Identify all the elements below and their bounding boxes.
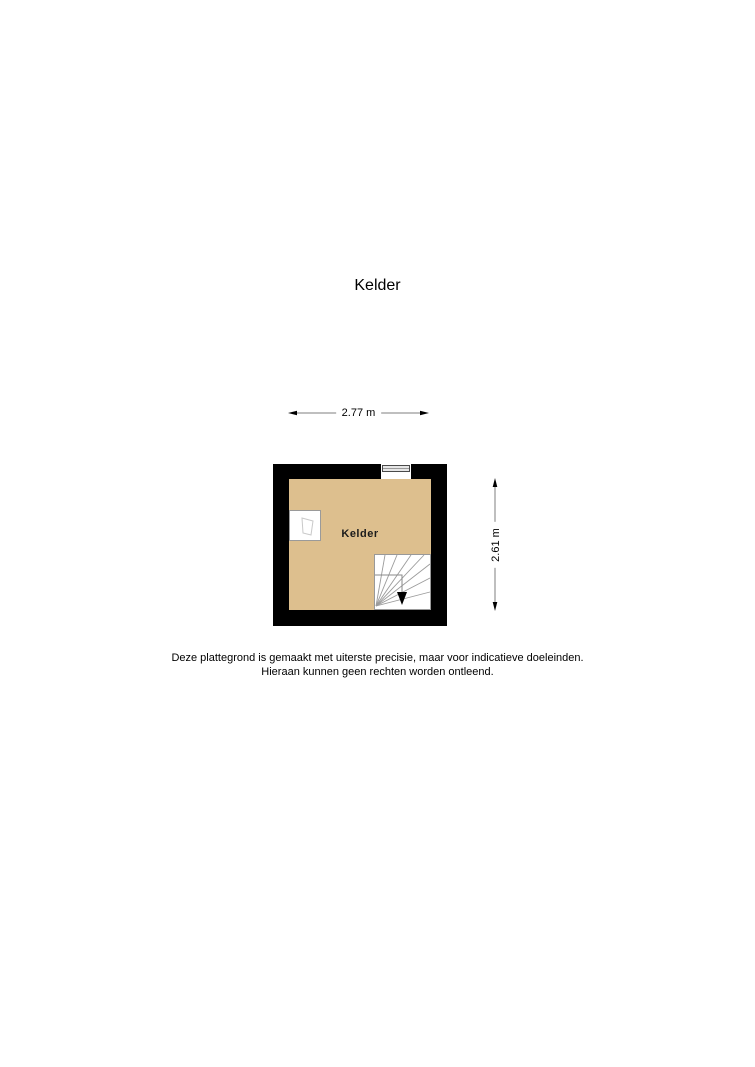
disclaimer-line-2: Hieraan kunnen geen rechten worden ontle… — [261, 666, 493, 678]
arrow-left-icon — [288, 411, 297, 416]
arrow-down-icon — [493, 602, 498, 611]
arrow-right-icon — [420, 411, 429, 416]
window-opening — [381, 464, 411, 479]
floorplan-kelder: Kelder — [273, 464, 447, 626]
width-dimension: 2.77 m — [288, 405, 429, 421]
basement-window-icon — [382, 465, 410, 472]
disclaimer-text: Deze plattegrond is gemaakt met uiterste… — [0, 652, 755, 679]
floorplan-page: Kelder 2.77 m — [0, 0, 755, 1067]
winder-stairs-down-icon — [374, 554, 431, 610]
height-dimension: 2.61 m — [487, 478, 504, 611]
width-dimension-label: 2.77 m — [336, 407, 382, 419]
arrow-up-icon — [493, 478, 498, 487]
height-dimension-label: 2.61 m — [490, 522, 502, 568]
room-label: Kelder — [289, 528, 431, 540]
disclaimer-line-1: Deze plattegrond is gemaakt met uiterste… — [171, 652, 583, 664]
page-title: Kelder — [0, 277, 755, 295]
window-glass-line — [383, 468, 409, 469]
